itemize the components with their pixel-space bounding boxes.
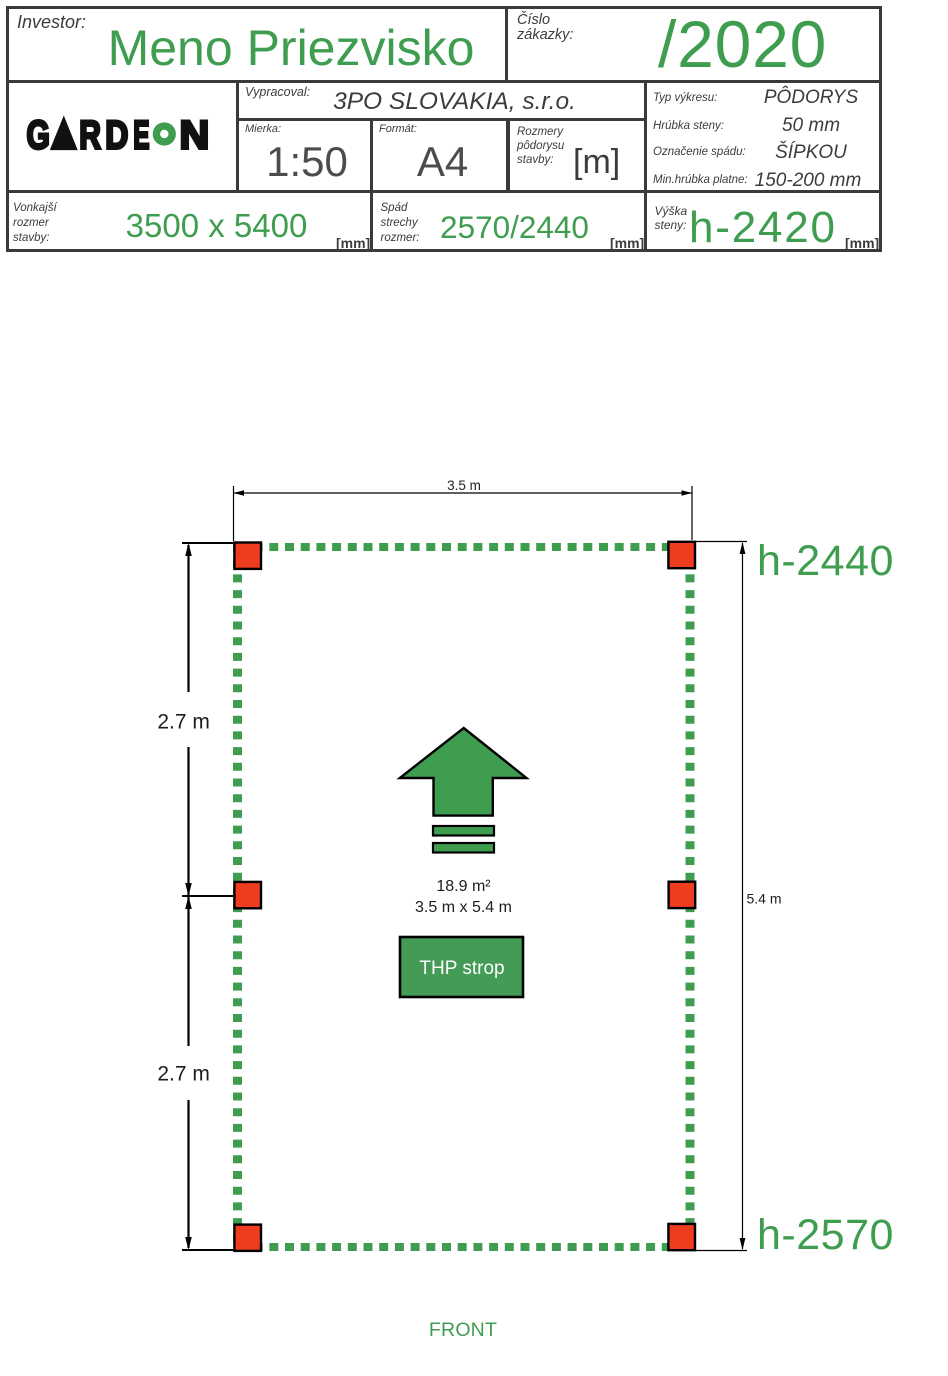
svg-text:R: R: [79, 113, 101, 157]
svg-text:THP strop: THP strop: [419, 958, 504, 979]
svg-text:FRONT: FRONT: [429, 1319, 497, 1341]
svg-text:E: E: [133, 113, 149, 158]
svg-text:5.4 m: 5.4 m: [747, 891, 782, 907]
svg-text:2.7 m: 2.7 m: [157, 1063, 210, 1086]
svg-text:h-2440: h-2440: [757, 537, 894, 585]
svg-text:3.5 m: 3.5 m: [447, 478, 481, 493]
svg-text:G: G: [27, 113, 50, 157]
svg-text:N: N: [180, 112, 210, 157]
svg-text:3.5 m x 5.4 m: 3.5 m x 5.4 m: [415, 899, 512, 916]
svg-text:D: D: [105, 112, 128, 157]
svg-text:2.7 m: 2.7 m: [157, 711, 210, 734]
svg-text:18.9 m²: 18.9 m²: [436, 878, 491, 895]
svg-text:h-2570: h-2570: [757, 1211, 894, 1259]
